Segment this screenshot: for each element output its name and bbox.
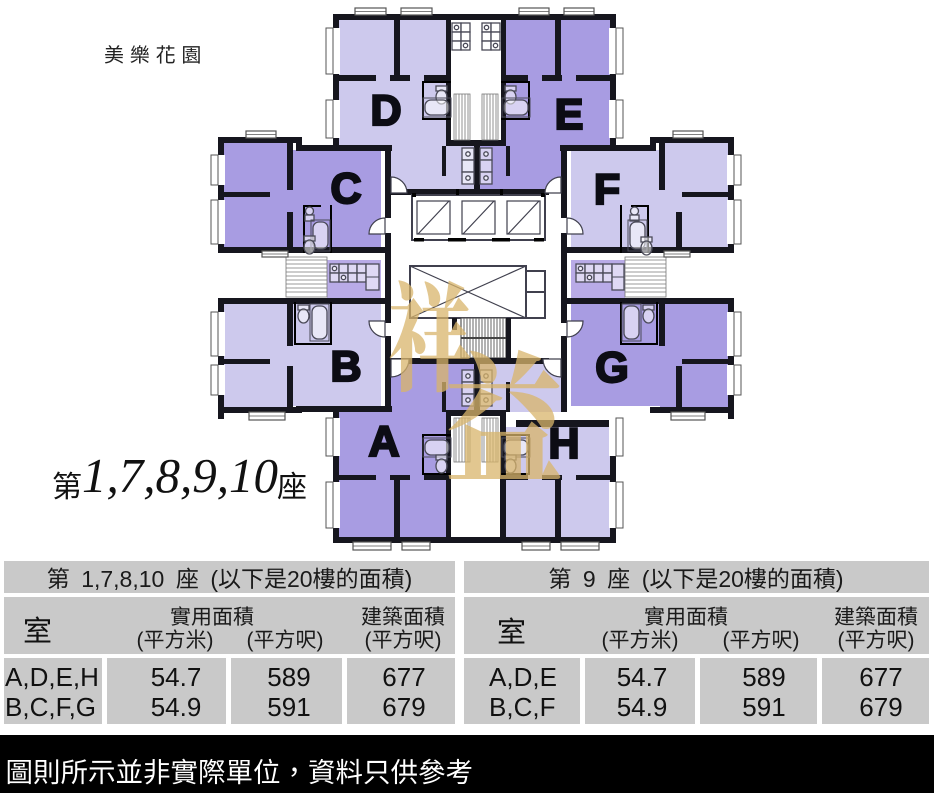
svg-text:): ) — [793, 629, 800, 652]
svg-text:9: 9 — [583, 566, 596, 592]
svg-text:(: ( — [247, 629, 254, 652]
svg-text:54.7: 54.7 — [617, 662, 668, 692]
svg-text:B,C,F: B,C,F — [489, 692, 555, 722]
svg-text:(: ( — [723, 629, 730, 652]
svg-text:677: 677 — [382, 662, 425, 692]
svg-text:(: ( — [838, 629, 845, 652]
svg-text:): ) — [405, 566, 413, 592]
svg-text:(: ( — [365, 629, 372, 652]
svg-text:A,D,E,H: A,D,E,H — [5, 662, 99, 692]
svg-text:(: ( — [210, 566, 218, 592]
svg-text:20: 20 — [287, 566, 313, 592]
svg-text:B,C,F,G: B,C,F,G — [5, 692, 96, 722]
svg-text:): ) — [836, 566, 844, 592]
svg-text:589: 589 — [267, 662, 310, 692]
svg-text:(: ( — [642, 566, 650, 592]
svg-text:): ) — [207, 629, 214, 652]
svg-text:54.9: 54.9 — [617, 692, 668, 722]
svg-text:591: 591 — [742, 692, 785, 722]
svg-text:): ) — [908, 629, 915, 652]
svg-text:A,D,E: A,D,E — [489, 662, 557, 692]
svg-text:591: 591 — [267, 692, 310, 722]
svg-text:1,7,8,10: 1,7,8,10 — [81, 566, 164, 592]
svg-text:(: ( — [137, 629, 144, 652]
svg-text:54.9: 54.9 — [151, 692, 202, 722]
svg-text:679: 679 — [382, 692, 425, 722]
svg-text:): ) — [435, 629, 442, 652]
svg-text:): ) — [317, 629, 324, 652]
svg-text:(: ( — [602, 629, 609, 652]
svg-text:20: 20 — [718, 566, 744, 592]
svg-text:54.7: 54.7 — [151, 662, 202, 692]
svg-text:679: 679 — [859, 692, 902, 722]
svg-text:677: 677 — [859, 662, 902, 692]
svg-text:589: 589 — [742, 662, 785, 692]
svg-text:1,7,8,9,10: 1,7,8,9,10 — [82, 448, 278, 503]
svg-text:): ) — [672, 629, 679, 652]
